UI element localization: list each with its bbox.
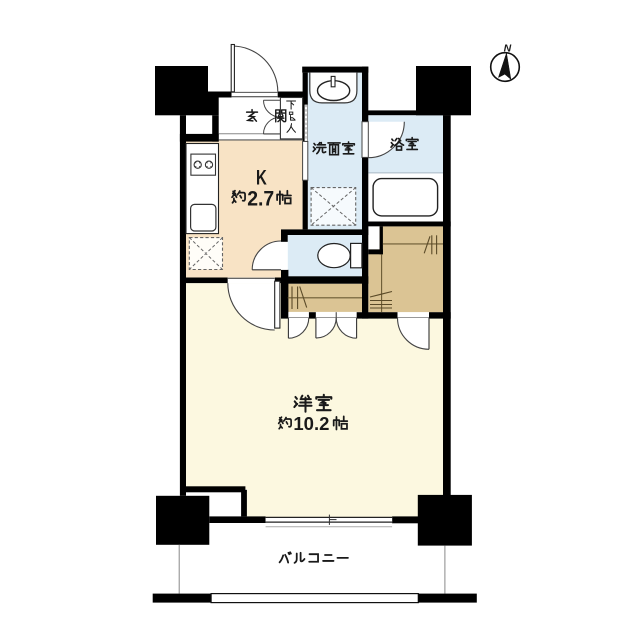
svg-text:K: K	[256, 166, 267, 190]
svg-text:N: N	[504, 43, 512, 55]
svg-text:2.7: 2.7	[247, 188, 274, 211]
svg-text:10.2: 10.2	[293, 414, 329, 434]
